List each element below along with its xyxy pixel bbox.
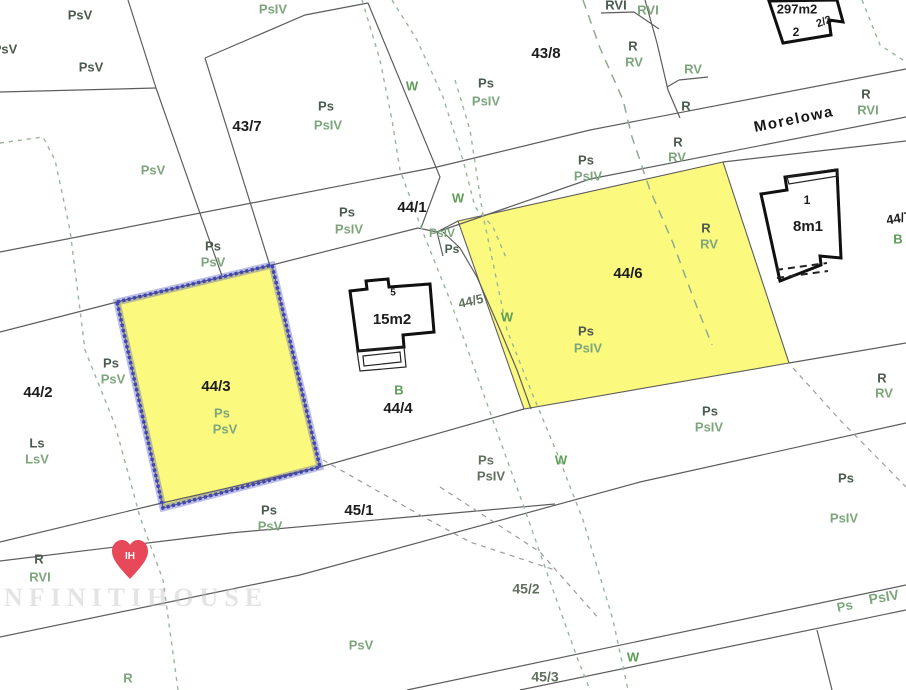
label-ps: Ps	[445, 242, 460, 256]
label-44-6: 44/6	[613, 265, 642, 282]
label-15m2: 15m2	[373, 311, 411, 328]
label-psiv: PsIV	[259, 1, 288, 16]
label-ps: Ps	[478, 452, 494, 467]
label-ps: Ps	[205, 238, 221, 253]
label-1: 1	[804, 193, 811, 207]
label-psiv: PsIV	[314, 117, 343, 132]
location-pin[interactable]: IH	[112, 540, 148, 579]
building-15m2-porch	[357, 347, 406, 371]
label-r: R	[701, 220, 711, 235]
label-psiv: PsIV	[477, 468, 506, 483]
label-rvi: RVI	[605, 0, 626, 12]
label-psv: PsV	[258, 518, 283, 533]
cadastral-map: INFINITIHOUSE PsVPsVPsVPsIVPsPsIV43/7PsV…	[0, 0, 906, 690]
label-psiv: PsIV	[472, 93, 501, 108]
parcel-44-6[interactable]	[458, 162, 789, 409]
label-ps: Ps	[702, 403, 718, 418]
label-43-7: 43/7	[232, 118, 261, 135]
label-rv: RV	[684, 61, 702, 76]
corner-dash	[862, 0, 906, 62]
label-44-1: 44/1	[397, 199, 426, 216]
label-rvi: RVI	[637, 2, 658, 17]
parcel-fills	[117, 162, 789, 508]
label-psiv: PsIV	[574, 168, 603, 183]
label-ps: Ps	[339, 204, 355, 219]
label-5: 5	[390, 288, 396, 299]
label-297m2: 297m2	[777, 1, 817, 16]
label-rvi: RVI	[857, 102, 878, 117]
label-45-2: 45/2	[512, 581, 539, 597]
label-psv: PsV	[201, 254, 226, 269]
label-44-3: 44/3	[201, 378, 230, 395]
label-b: B	[394, 382, 403, 397]
label-44-4: 44/4	[383, 400, 413, 417]
label-r: R	[123, 670, 133, 685]
label-b: B	[893, 231, 902, 246]
label-ps: Ps	[835, 597, 854, 615]
label-lsv: LsV	[25, 451, 49, 466]
label-ps: Ps	[214, 405, 230, 420]
label-44-5: 44/5	[457, 291, 485, 311]
label-rvi: RVI	[29, 569, 50, 584]
label-8m1: 8m1	[793, 218, 823, 235]
label-psiv: PsIV	[867, 586, 900, 607]
label-ps: Ps	[103, 355, 119, 370]
label-44-2: 44/2	[23, 384, 52, 401]
label-r: R	[628, 38, 638, 53]
label-ps: Ps	[478, 75, 494, 90]
label-psv: PsV	[0, 41, 18, 56]
label-rv: RV	[668, 149, 686, 164]
label-rv: RV	[700, 236, 718, 251]
label-43-8: 43/8	[531, 45, 560, 62]
label-r: R	[681, 98, 691, 113]
watermark: INFINITIHOUSE	[0, 583, 268, 612]
label-psv: PsV	[141, 162, 166, 177]
label-psv: PsV	[68, 7, 93, 22]
building-15m2-porch-inner	[363, 352, 401, 366]
label-psv: PsV	[213, 421, 238, 436]
label-psv: PsV	[79, 59, 104, 74]
label-psiv: PsIV	[695, 419, 724, 434]
label-w: W	[406, 78, 419, 93]
label-w: W	[501, 309, 514, 324]
label-rv: RV	[875, 385, 893, 400]
label-ps: Ps	[318, 98, 334, 113]
label-psiv: PsIV	[429, 226, 455, 240]
label-ps: Ps	[578, 323, 594, 338]
label-44-7: 44/7	[885, 208, 906, 227]
label-ps: Ps	[261, 502, 277, 517]
label-r: R	[877, 370, 887, 385]
label-2: 2	[793, 25, 800, 39]
pin-label: IH	[125, 551, 135, 562]
label-ps: Ps	[838, 470, 854, 485]
label-psiv: PsIV	[830, 510, 859, 525]
label-ls: Ls	[29, 435, 44, 450]
label-ps: Ps	[578, 152, 594, 167]
label-r: R	[34, 551, 44, 566]
label-r: R	[861, 86, 871, 101]
label-45-1: 45/1	[344, 502, 373, 519]
label-psv: PsV	[101, 371, 126, 386]
label-45-3: 45/3	[531, 669, 558, 685]
label-w: W	[555, 452, 568, 467]
label-r: R	[673, 134, 683, 149]
label-w: W	[627, 649, 640, 664]
label-psv: PsV	[349, 637, 374, 652]
label-psiv: PsIV	[574, 340, 603, 355]
label-psiv: PsIV	[335, 221, 364, 236]
label-rv: RV	[625, 54, 643, 69]
label-morelowa: Morelowa	[752, 103, 835, 136]
label-w: W	[452, 190, 465, 205]
